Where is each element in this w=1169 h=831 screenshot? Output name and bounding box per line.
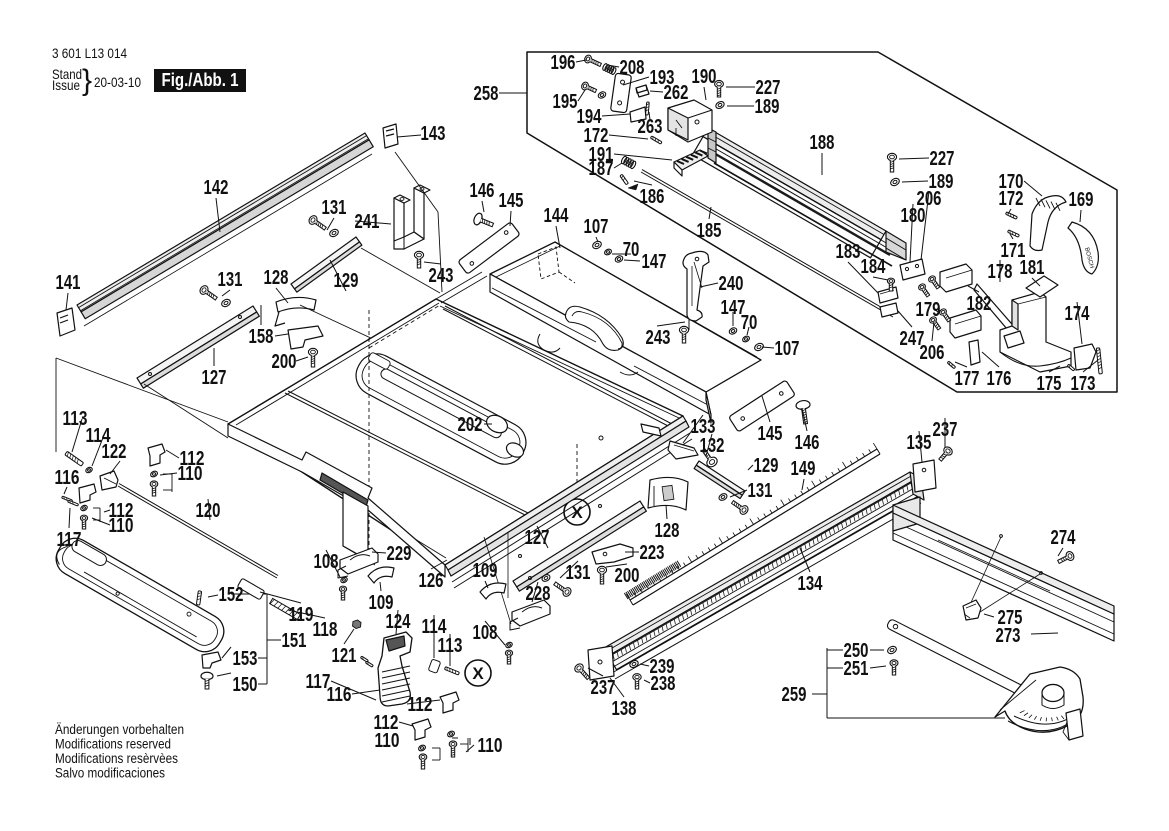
svg-text:173: 173 — [1071, 373, 1096, 395]
svg-text:227: 227 — [930, 148, 955, 170]
svg-text:152: 152 — [219, 584, 244, 606]
svg-text:131: 131 — [218, 269, 243, 291]
svg-text:180: 180 — [901, 205, 926, 227]
svg-text:108: 108 — [473, 622, 498, 644]
svg-text:117: 117 — [57, 529, 82, 551]
svg-text:223: 223 — [640, 542, 665, 564]
svg-text:186: 186 — [640, 186, 665, 208]
svg-text:116: 116 — [55, 467, 80, 489]
svg-text:175: 175 — [1037, 373, 1062, 395]
svg-text:145: 145 — [758, 423, 783, 445]
svg-text:183: 183 — [836, 241, 861, 263]
svg-text:70: 70 — [741, 312, 758, 334]
svg-text:110: 110 — [178, 463, 203, 485]
svg-text:147: 147 — [642, 251, 667, 273]
svg-text:206: 206 — [920, 342, 945, 364]
svg-text:113: 113 — [63, 408, 88, 430]
svg-text:177: 177 — [955, 368, 980, 390]
svg-text:182: 182 — [967, 293, 992, 315]
svg-text:108: 108 — [314, 551, 339, 573]
svg-text:195: 195 — [553, 91, 578, 113]
svg-text:20-03-10: 20-03-10 — [94, 74, 141, 90]
svg-text:118: 118 — [313, 619, 338, 641]
svg-text:116: 116 — [327, 684, 352, 706]
svg-text:200: 200 — [615, 565, 640, 587]
svg-text:238: 238 — [651, 673, 676, 695]
svg-text:251: 251 — [844, 658, 869, 680]
svg-text:124: 124 — [386, 611, 412, 633]
svg-text:243: 243 — [429, 265, 454, 287]
svg-text:}: } — [82, 64, 92, 97]
svg-text:259: 259 — [782, 684, 807, 706]
svg-text:190: 190 — [692, 66, 717, 88]
svg-text:126: 126 — [419, 570, 444, 592]
svg-text:Änderungen vorbehalten: Änderungen vorbehalten — [55, 722, 184, 737]
svg-text:145: 145 — [499, 190, 524, 212]
svg-text:228: 228 — [526, 583, 551, 605]
svg-text:121: 121 — [332, 645, 357, 667]
svg-text:187: 187 — [589, 158, 614, 180]
svg-text:273: 273 — [996, 625, 1021, 647]
svg-text:146: 146 — [795, 432, 820, 454]
svg-text:243: 243 — [646, 327, 671, 349]
svg-text:202: 202 — [458, 414, 483, 436]
svg-text:128: 128 — [264, 267, 289, 289]
svg-text:131: 131 — [566, 562, 591, 584]
svg-text:274: 274 — [1051, 527, 1077, 549]
svg-text:146: 146 — [470, 180, 495, 202]
svg-text:144: 144 — [544, 205, 570, 227]
svg-text:142: 142 — [204, 177, 229, 199]
svg-text:172: 172 — [999, 188, 1024, 210]
svg-text:200: 200 — [272, 351, 297, 373]
svg-text:196: 196 — [551, 52, 576, 74]
svg-text:179: 179 — [916, 299, 941, 321]
svg-text:Issue: Issue — [52, 77, 80, 93]
svg-text:113: 113 — [438, 635, 463, 657]
svg-text:119: 119 — [289, 604, 314, 626]
svg-text:181: 181 — [1020, 257, 1045, 279]
svg-text:138: 138 — [612, 698, 637, 720]
svg-text:135: 135 — [907, 432, 932, 454]
svg-text:134: 134 — [798, 573, 824, 595]
svg-text:129: 129 — [334, 270, 359, 292]
svg-text:122: 122 — [102, 441, 127, 463]
svg-text:188: 188 — [810, 132, 835, 154]
svg-text:120: 120 — [196, 500, 221, 522]
svg-text:Modifications reserved: Modifications reserved — [55, 737, 171, 752]
svg-text:Salvo modificaciones: Salvo modificaciones — [55, 766, 165, 781]
svg-text:112: 112 — [408, 694, 433, 716]
svg-text:149: 149 — [791, 458, 816, 480]
svg-text:184: 184 — [861, 256, 887, 278]
svg-text:141: 141 — [56, 272, 81, 294]
svg-text:127: 127 — [525, 527, 550, 549]
svg-text:131: 131 — [748, 480, 773, 502]
svg-text:169: 169 — [1069, 189, 1094, 211]
svg-text:241: 241 — [355, 211, 380, 233]
svg-text:208: 208 — [620, 57, 645, 79]
svg-text:189: 189 — [755, 96, 780, 118]
svg-text:132: 132 — [700, 435, 725, 457]
svg-text:107: 107 — [775, 338, 800, 360]
svg-text:151: 151 — [282, 630, 307, 652]
svg-text:158: 158 — [249, 326, 274, 348]
svg-text:237: 237 — [591, 677, 616, 699]
svg-text:110: 110 — [478, 735, 503, 757]
svg-text:240: 240 — [719, 273, 744, 295]
svg-text:262: 262 — [664, 82, 689, 104]
svg-text:109: 109 — [473, 560, 498, 582]
svg-text:178: 178 — [988, 261, 1013, 283]
svg-text:128: 128 — [655, 520, 680, 542]
svg-text:258: 258 — [474, 83, 499, 105]
svg-text:185: 185 — [697, 220, 722, 242]
svg-text:176: 176 — [987, 368, 1012, 390]
svg-text:131: 131 — [322, 197, 347, 219]
svg-text:Fig./Abb. 1: Fig./Abb. 1 — [162, 70, 239, 90]
svg-text:110: 110 — [375, 730, 400, 752]
svg-text:229: 229 — [387, 543, 412, 565]
svg-text:150: 150 — [233, 674, 258, 696]
svg-text:143: 143 — [421, 123, 446, 145]
svg-text:110: 110 — [109, 515, 134, 537]
svg-text:Modifications resèrvèes: Modifications resèrvèes — [55, 751, 178, 766]
svg-text:237: 237 — [933, 419, 958, 441]
svg-text:127: 127 — [202, 367, 227, 389]
svg-text:129: 129 — [754, 455, 779, 477]
svg-text:174: 174 — [1065, 303, 1091, 325]
svg-text:263: 263 — [638, 116, 663, 138]
svg-text:107: 107 — [584, 216, 609, 238]
svg-text:70: 70 — [623, 239, 640, 261]
svg-text:153: 153 — [233, 648, 258, 670]
svg-text:3 601 L13 014: 3 601 L13 014 — [52, 45, 127, 61]
svg-text:X: X — [472, 664, 484, 683]
